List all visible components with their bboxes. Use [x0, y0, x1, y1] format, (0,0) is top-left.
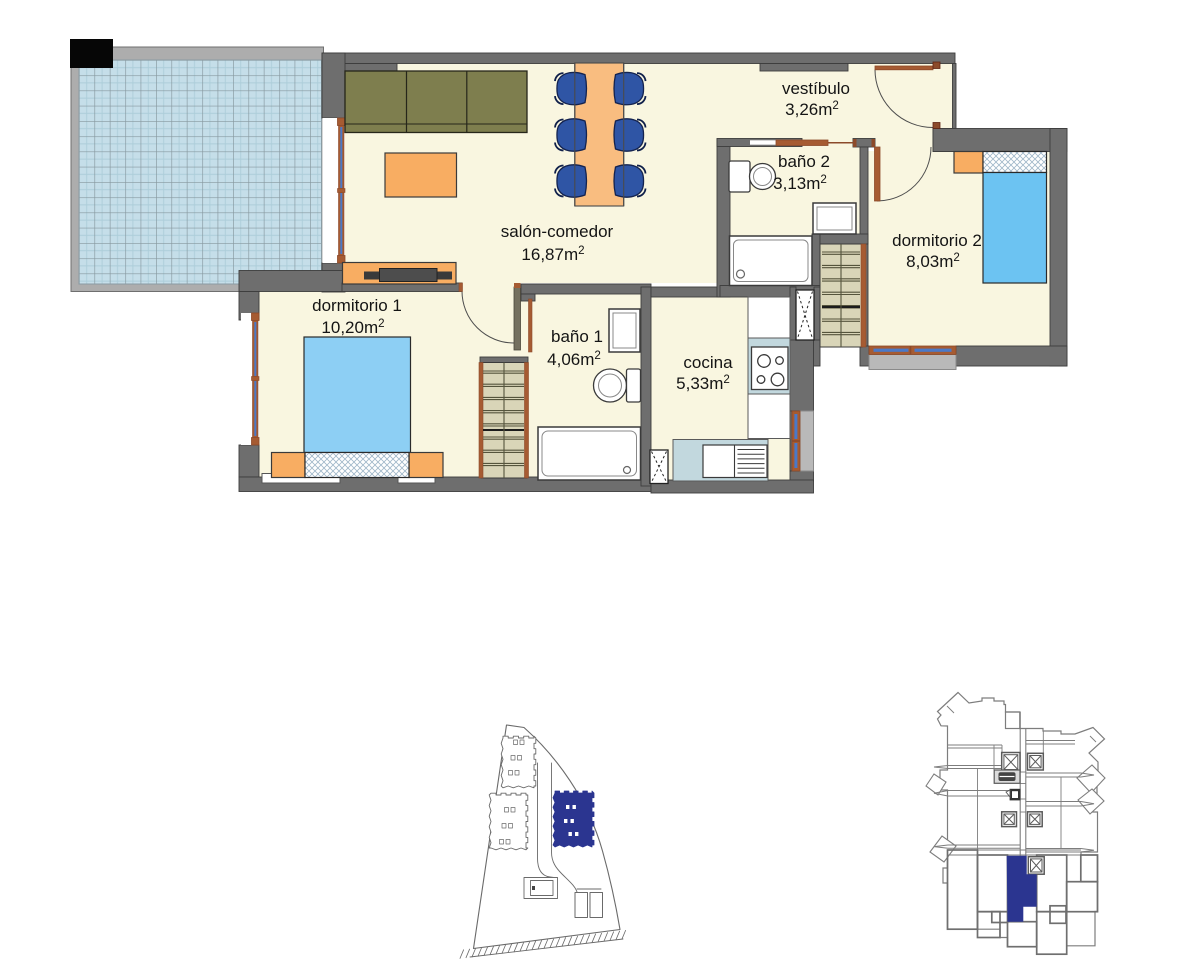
- svg-text:3,13m2: 3,13m2: [773, 173, 827, 193]
- svg-text:dormitorio 2: dormitorio 2: [892, 231, 982, 250]
- svg-text:vestíbulo: vestíbulo: [782, 79, 850, 98]
- svg-text:8,03m2: 8,03m2: [906, 251, 960, 271]
- svg-text:salón-comedor: salón-comedor: [501, 222, 614, 241]
- svg-text:dormitorio 1: dormitorio 1: [312, 296, 402, 315]
- svg-text:10,20m2: 10,20m2: [321, 317, 384, 337]
- svg-text:baño 1: baño 1: [551, 327, 603, 346]
- svg-text:16,87m2: 16,87m2: [521, 244, 584, 264]
- svg-text:baño 2: baño 2: [778, 152, 830, 171]
- svg-text:5,33m2: 5,33m2: [676, 373, 730, 393]
- svg-text:3,26m2: 3,26m2: [785, 99, 839, 119]
- svg-text:cocina: cocina: [683, 353, 733, 372]
- svg-text:4,06m2: 4,06m2: [547, 349, 601, 369]
